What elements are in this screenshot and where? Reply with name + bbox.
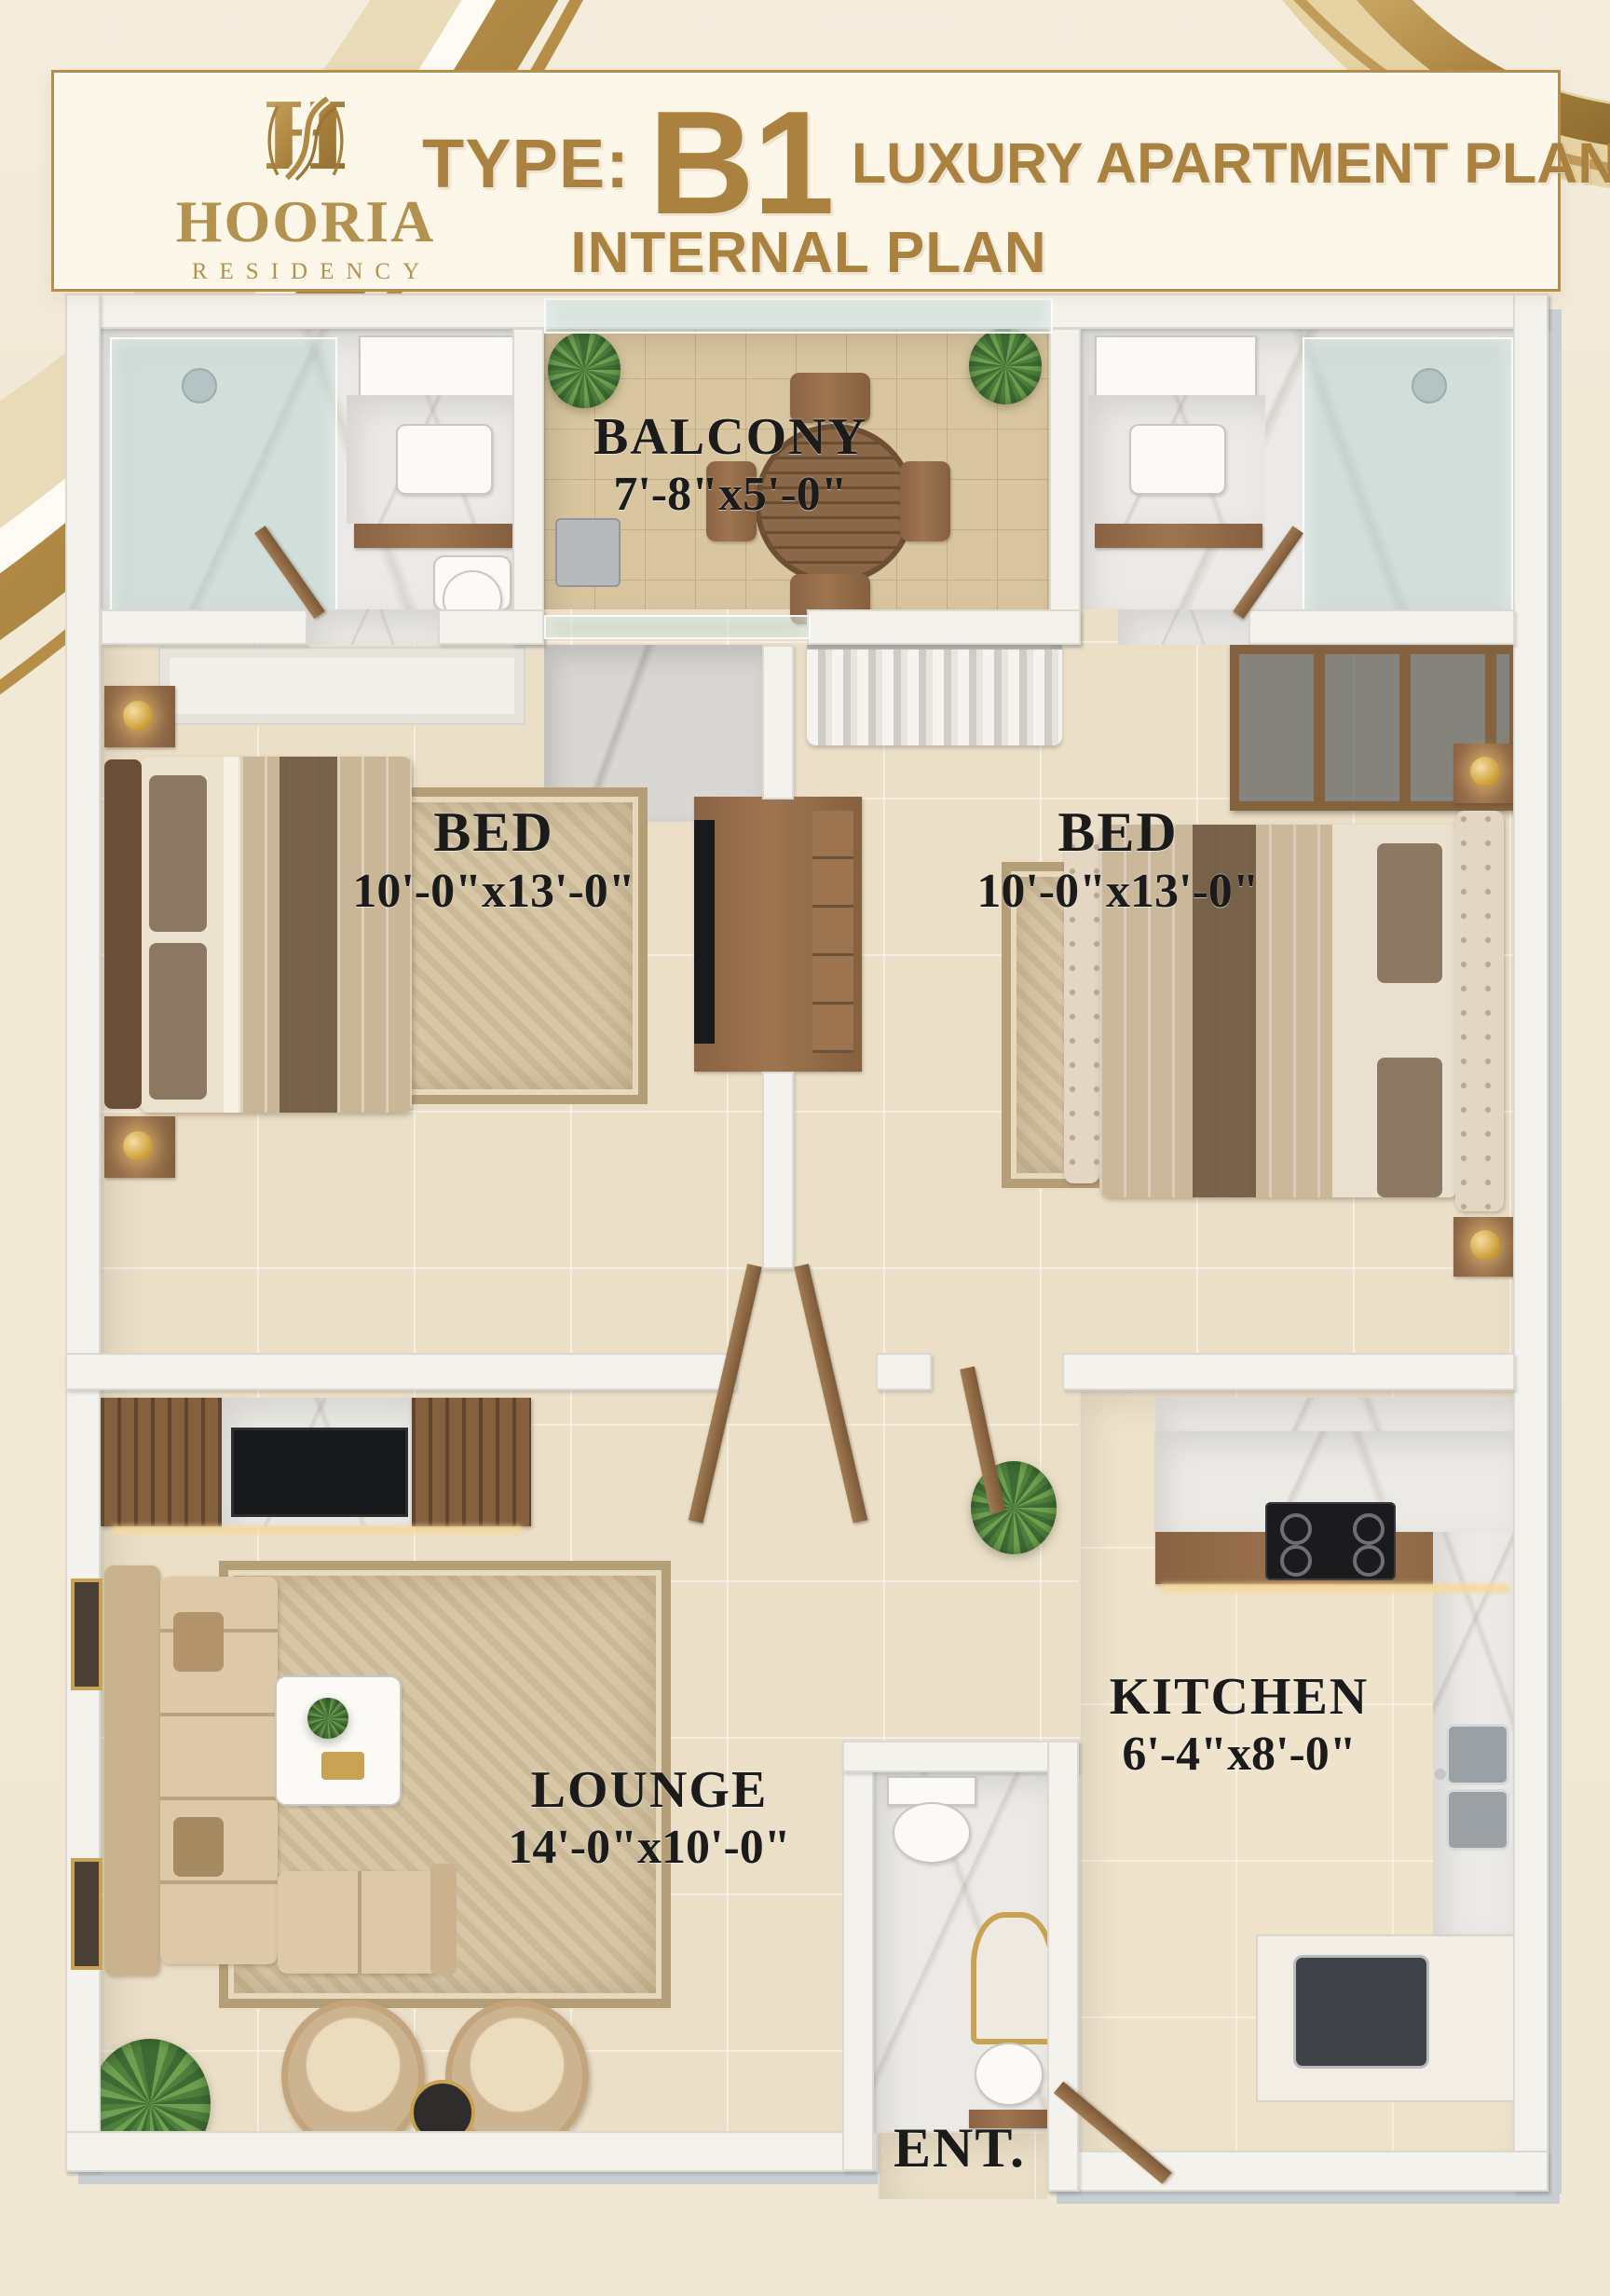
balcony-plant-left-icon xyxy=(548,332,621,408)
wall-outer-bottom-right xyxy=(1047,2151,1549,2192)
title-unit-code: B1 xyxy=(648,104,833,222)
balcony-label: BALCONY 7'-8"x5'-0" xyxy=(544,408,917,523)
bed-right-pillow-bottom xyxy=(1377,1058,1442,1197)
coffee-table-tray xyxy=(321,1752,364,1780)
kitchen-backsplash xyxy=(1155,1398,1515,1431)
room-dimensions: 7'-8"x5'-0" xyxy=(544,467,917,523)
bed-left-pillow-bottom xyxy=(149,943,207,1100)
vanity-mirror-left xyxy=(359,335,516,397)
tv-screen-left xyxy=(694,820,715,1044)
armchair-left xyxy=(281,2000,425,2152)
vanity-cabinet-right xyxy=(1095,524,1262,548)
vanity-mirror-right xyxy=(1095,335,1257,397)
wall-bedroom-divider-top xyxy=(762,645,794,799)
wall-bath-left-balcony xyxy=(512,328,544,645)
bed-right-headboard xyxy=(1455,811,1504,1211)
room-dimensions: 14'-0"x10'-0" xyxy=(486,1820,812,1876)
bath-left-door-threshold xyxy=(307,609,438,645)
sofa-back xyxy=(104,1565,160,1975)
burner-icon xyxy=(1353,1545,1385,1577)
wall-bedroom-right-kitchen xyxy=(1062,1353,1515,1390)
bedroom-right-label: BED 10'-0"x13'-0" xyxy=(932,801,1304,920)
wall-lounge-powder xyxy=(842,1741,874,2171)
island-sink-basin xyxy=(1293,1955,1429,2069)
room-name: BALCONY xyxy=(544,408,917,467)
under-cabinet-light-strip xyxy=(1161,1584,1509,1592)
table-lamp-icon xyxy=(123,1131,153,1161)
room-dimensions: 10'-0"x13'-0" xyxy=(932,864,1304,920)
balcony-glass-railing xyxy=(544,298,1053,334)
entrance-label: ENT. xyxy=(871,2117,1048,2180)
wall-powder-kitchen xyxy=(1047,1741,1079,2192)
burner-icon xyxy=(1280,1513,1312,1545)
outer-bevel-bottom-left xyxy=(78,2171,878,2184)
shower-enclosure-right xyxy=(1303,337,1513,643)
room-name: BED xyxy=(932,801,1304,864)
kitchen-sink-bowl xyxy=(1446,1724,1509,1785)
wall-bedroom-right-hall-a xyxy=(876,1353,932,1390)
brand-block: H HOORIA RESIDENCY xyxy=(157,78,455,285)
bed-left-headboard xyxy=(104,759,142,1109)
wall-bedroom-left-lounge xyxy=(65,1353,736,1390)
wall-outer-right xyxy=(1513,294,1549,2192)
room-name: KITCHEN xyxy=(1081,1668,1398,1727)
outer-bevel-bottom-right xyxy=(1057,2192,1560,2204)
bedroom-left-closet xyxy=(158,647,525,725)
bedroom-right-curtains xyxy=(807,645,1062,745)
bed-right-pillow-top xyxy=(1377,843,1442,983)
sofa-seat-horizontal xyxy=(278,1871,443,1974)
wall-top-row-a xyxy=(101,609,307,645)
title-prefix: TYPE: xyxy=(422,124,630,203)
sofa-armrest xyxy=(430,1864,457,1975)
room-name: LOUNGE xyxy=(486,1761,812,1820)
kitchen-sink-bowl xyxy=(1446,1789,1509,1851)
powder-basin xyxy=(975,2043,1044,2106)
burner-icon xyxy=(1280,1545,1312,1577)
wall-art-frame xyxy=(71,1578,102,1690)
wall-top-row-c xyxy=(807,609,1081,645)
vanity-cabinet-left xyxy=(354,524,512,548)
bath-right-door-threshold xyxy=(1118,609,1248,645)
balcony-side-table xyxy=(555,518,621,587)
outer-bevel-right xyxy=(1549,309,1562,2193)
brand-name: HOORIA xyxy=(157,192,455,252)
burner-icon xyxy=(1353,1513,1385,1545)
balcony-plant-right-icon xyxy=(969,328,1042,404)
title-suffix: LUXURY APARTMENT PLAN xyxy=(852,130,1610,196)
bed-left-sheet-fold xyxy=(224,757,239,1113)
room-dimensions: 10'-0"x13'-0" xyxy=(307,864,680,920)
bed-left-pillow-top xyxy=(149,775,207,932)
header-panel: H HOORIA RESIDENCY TYPE: B1 LUXURY APART… xyxy=(51,70,1561,292)
vanity-sink-right xyxy=(1129,424,1226,495)
kitchen-label: KITCHEN 6'-4"x8'-0" xyxy=(1081,1668,1398,1783)
room-name: ENT. xyxy=(871,2117,1048,2180)
balcony-sliding-door xyxy=(544,615,811,639)
wall-balcony-bath-right xyxy=(1049,328,1081,645)
lounge-media-slat-left xyxy=(101,1398,222,1526)
sofa-throw-pillow xyxy=(173,1612,224,1672)
vanity-sink-left xyxy=(396,424,493,495)
faucet-icon xyxy=(1435,1769,1446,1780)
powder-toilet-bowl xyxy=(893,1802,971,1864)
poster-page: H HOORIA RESIDENCY TYPE: B1 LUXURY APART… xyxy=(0,0,1610,2296)
plan-title: TYPE: B1 LUXURY APARTMENT PLAN xyxy=(422,104,1610,222)
wall-top-row-b xyxy=(438,609,544,645)
table-lamp-icon xyxy=(1470,1230,1500,1260)
floor-plan: BALCONY 7'-8"x5'-0" BED 10'-0"x13'-0" BE… xyxy=(0,0,1610,2296)
plan-subtitle: INTERNAL PLAN xyxy=(548,220,1070,286)
room-dimensions: 6'-4"x8'-0" xyxy=(1081,1727,1398,1783)
wall-bedroom-divider-bottom xyxy=(762,1072,794,1269)
bedroom-left-label: BED 10'-0"x13'-0" xyxy=(307,801,680,920)
wall-outer-bottom-left xyxy=(65,2131,878,2172)
media-shelf-right xyxy=(812,811,853,1053)
media-wall-light-strip xyxy=(112,1526,522,1534)
wall-powder-top xyxy=(842,1741,1079,1772)
lounge-media-slat-right xyxy=(412,1398,531,1526)
room-name: BED xyxy=(307,801,680,864)
powder-mirror xyxy=(971,1912,1055,2044)
coffee-table xyxy=(275,1675,402,1806)
wall-art-frame xyxy=(71,1858,102,1970)
coffee-table-plant-icon xyxy=(307,1698,348,1739)
table-lamp-icon xyxy=(1470,757,1500,786)
brand-tagline: RESIDENCY xyxy=(157,259,455,285)
wall-top-row-d xyxy=(1248,609,1515,645)
sofa-throw-pillow xyxy=(173,1817,224,1877)
hooria-monogram-icon: H xyxy=(251,78,361,192)
lounge-tv-screen xyxy=(231,1428,408,1517)
lounge-label: LOUNGE 14'-0"x10'-0" xyxy=(486,1761,812,1876)
table-lamp-icon xyxy=(123,701,153,731)
